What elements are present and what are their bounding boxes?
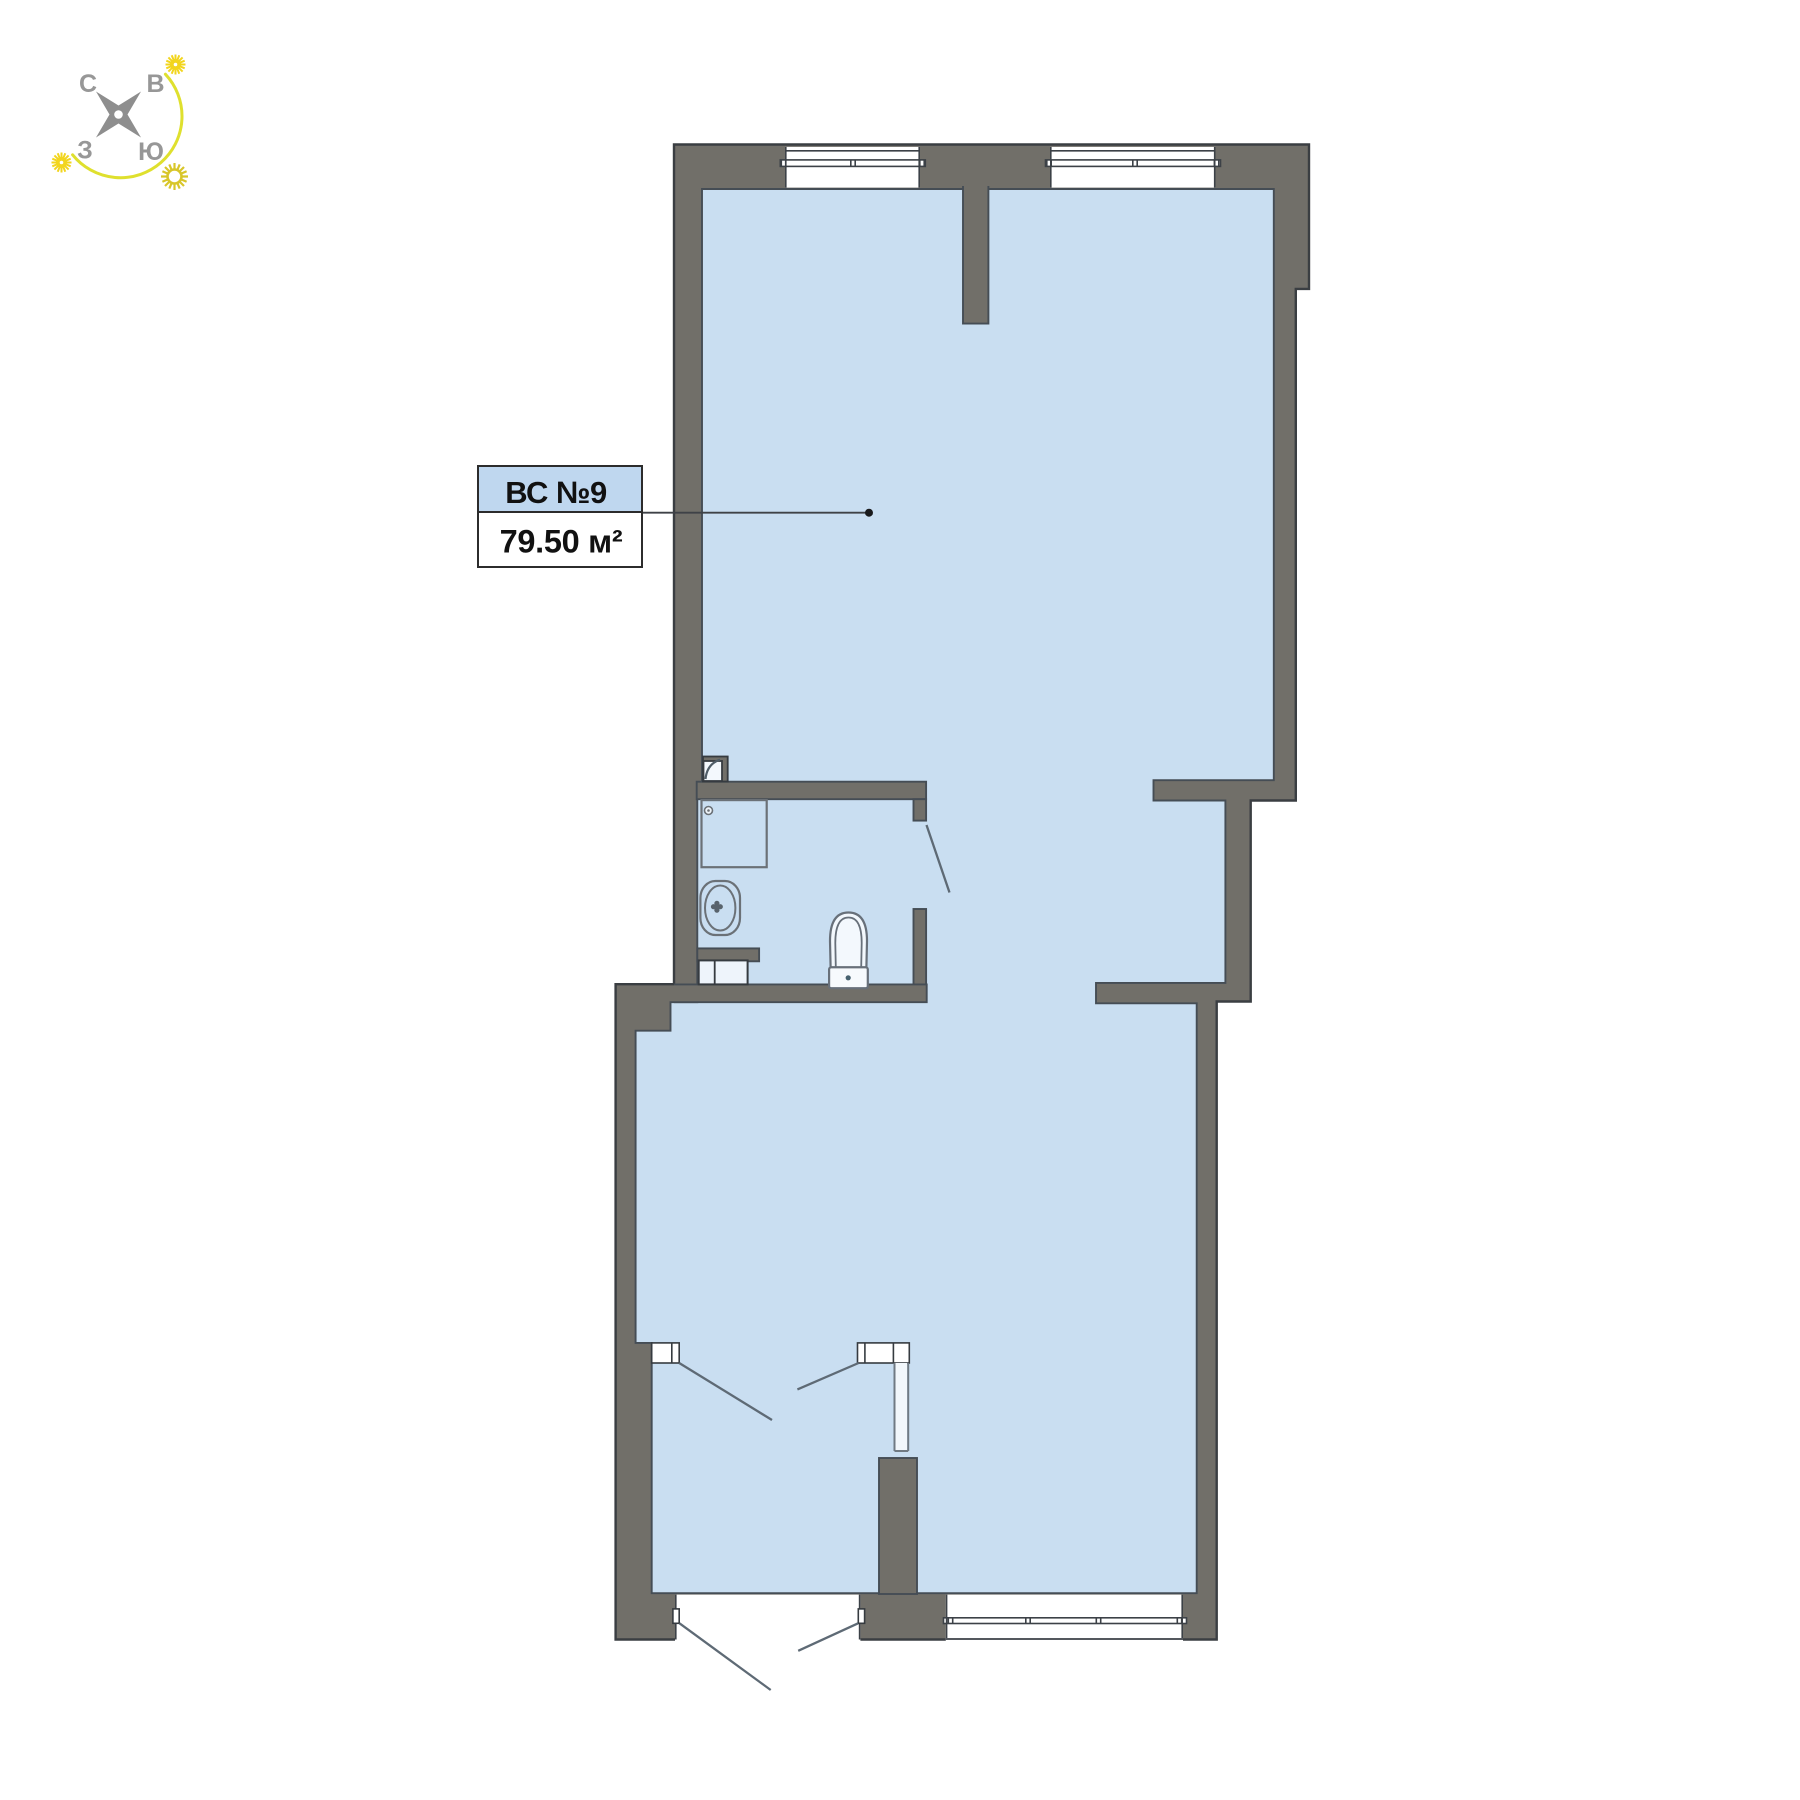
svg-text:79.50 м²: 79.50 м²: [500, 524, 623, 560]
svg-text:С: С: [79, 70, 97, 98]
svg-text:В: В: [146, 70, 164, 98]
svg-text:З: З: [77, 137, 93, 165]
svg-text:ВС №9: ВС №9: [505, 475, 607, 510]
svg-text:Ю: Ю: [138, 138, 164, 166]
